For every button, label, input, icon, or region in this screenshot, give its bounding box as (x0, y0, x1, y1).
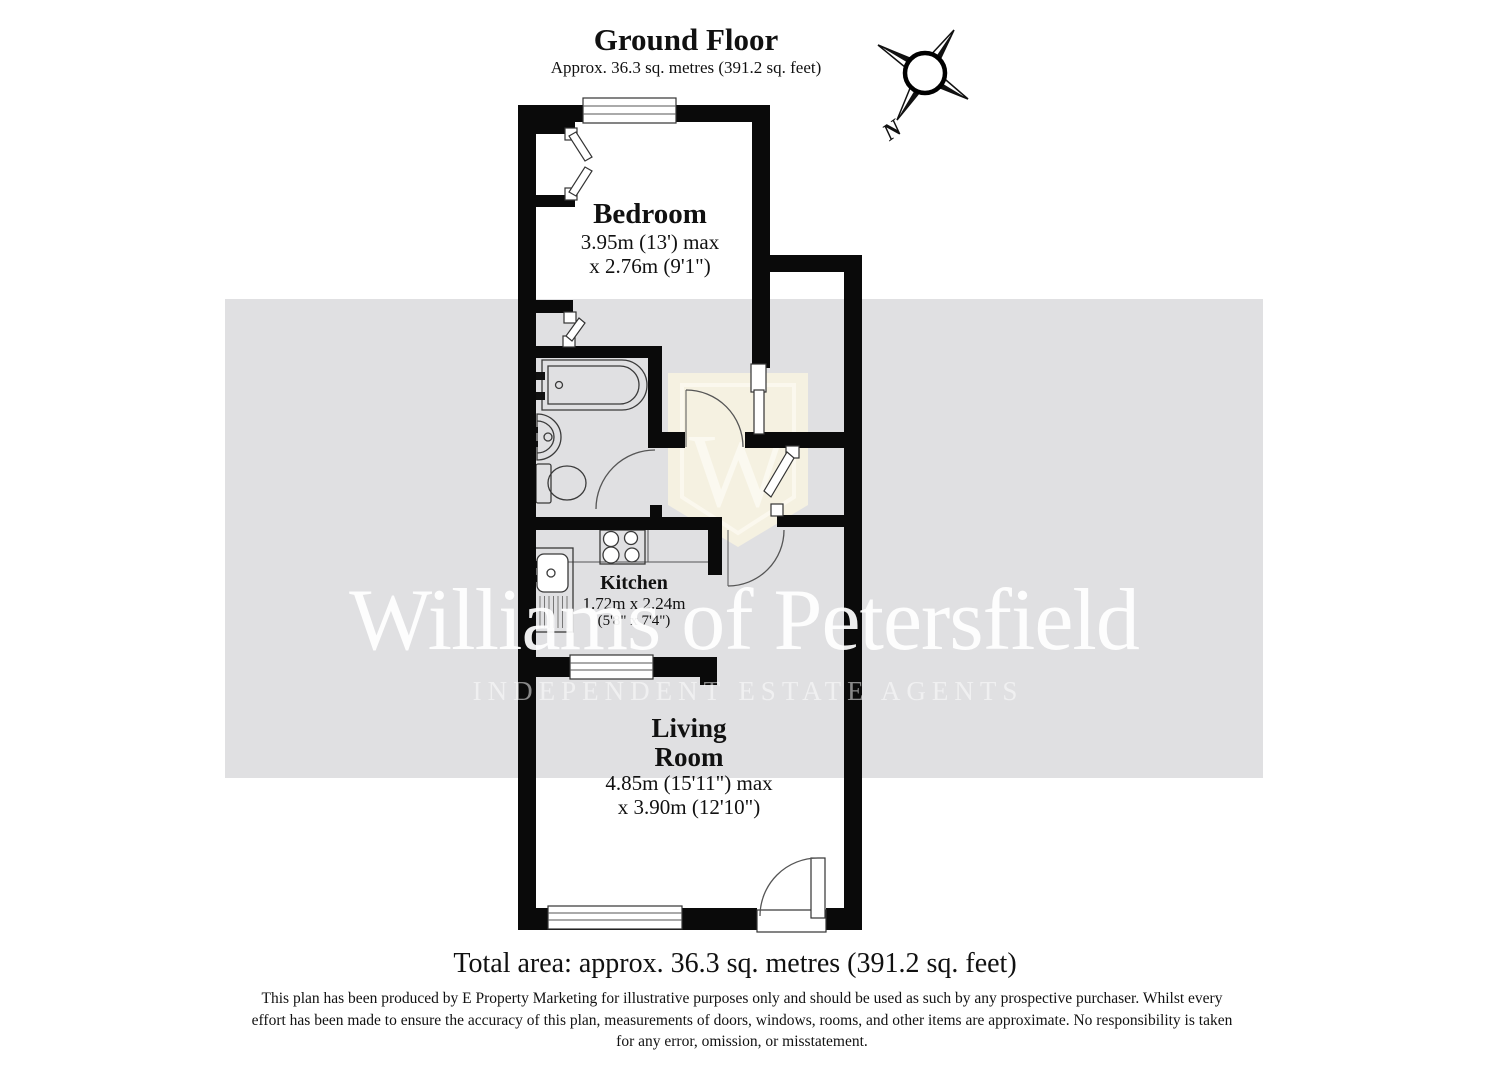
living-room-name: Living (605, 714, 772, 743)
watermark-tagline: INDEPENDENT ESTATE AGENTS (473, 676, 1024, 707)
wall-hall-bottom (777, 515, 845, 527)
hob-ring (604, 532, 619, 547)
wall-bathroom-top (518, 346, 662, 358)
floor-plan-drawing: W (0, 0, 1485, 1080)
bath-tap (536, 372, 545, 380)
floorplan-page: W (0, 0, 1485, 1080)
living-room-name: Room (605, 743, 772, 772)
wall-segment (518, 300, 573, 313)
page-title: Ground Floor (594, 22, 779, 58)
total-area: Total area: approx. 36.3 sq. metres (391… (453, 948, 1016, 980)
page-subtitle: Approx. 36.3 sq. metres (391.2 sq. feet) (551, 58, 822, 78)
wall-hall-top-left (648, 432, 685, 448)
hob-ring (625, 548, 639, 562)
entrance-door (757, 858, 826, 932)
toilet-bowl (548, 466, 586, 500)
bathroom-door (596, 450, 655, 509)
compass-circle (905, 53, 945, 93)
living-room-dimensions: x 3.90m (12'10") (605, 796, 772, 820)
disclaimer: This plan has been produced by E Propert… (247, 988, 1237, 1053)
wall-kitchen-top (518, 517, 722, 530)
bathroom-fixtures (531, 360, 647, 503)
toilet-cistern (536, 464, 551, 503)
bathtub (542, 360, 647, 410)
wall-bedroom-right (752, 105, 770, 368)
compass: N (877, 30, 968, 147)
bedroom-dimensions: x 2.76m (9'1") (581, 254, 720, 278)
living-room-dimensions: 4.85m (15'11") max (605, 772, 772, 796)
watermark-brand: Williams of Petersfield (349, 570, 1139, 671)
wardrobe-doors (565, 128, 592, 200)
bedroom-dimensions: 3.95m (13') max (581, 230, 720, 254)
hob-ring (625, 532, 638, 545)
living-room-label: Living Room 4.85m (15'11") max x 3.90m (… (605, 714, 772, 819)
bedroom-label: Bedroom 3.95m (13') max x 2.76m (9'1") (581, 199, 720, 278)
bath-tap (536, 392, 545, 400)
compass-north-label: N (877, 114, 908, 147)
wall-bathroom-right (648, 346, 662, 445)
hob-ring (603, 547, 619, 563)
living-room-window (548, 906, 682, 929)
wall-kitchen-right (708, 517, 722, 575)
bedroom-window (583, 98, 676, 123)
cupboard-door (563, 312, 585, 347)
bedroom-name: Bedroom (581, 199, 720, 230)
wall-segment (650, 505, 662, 519)
